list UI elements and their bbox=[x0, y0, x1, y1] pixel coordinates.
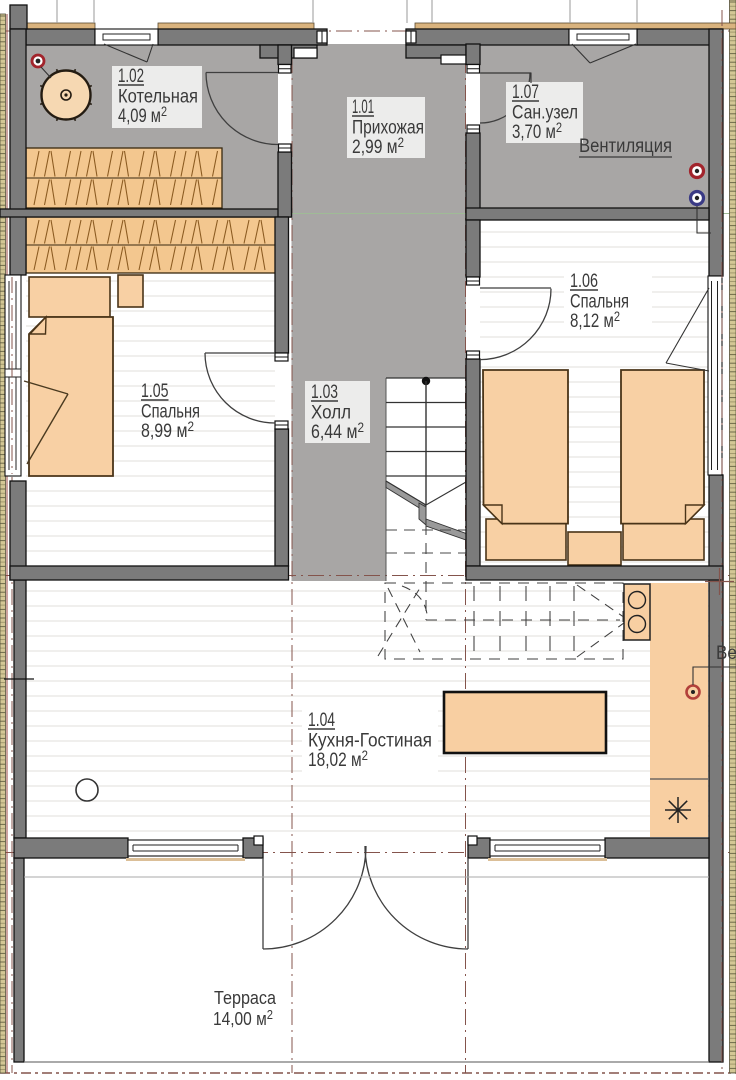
svg-text:Терраса: Терраса bbox=[214, 988, 277, 1008]
svg-text:Котельная: Котельная bbox=[118, 87, 198, 108]
svg-text:Прихожая: Прихожая bbox=[352, 118, 424, 139]
svg-text:1.05: 1.05 bbox=[141, 381, 169, 402]
svg-text:Кухня-Гостиная: Кухня-Гостиная bbox=[308, 731, 432, 752]
svg-text:Вентиляция: Вентиляция bbox=[716, 643, 736, 664]
svg-text:1.03: 1.03 bbox=[311, 382, 338, 403]
svg-text:1.01: 1.01 bbox=[352, 97, 374, 118]
svg-text:3,70 м2: 3,70 м2 bbox=[512, 119, 562, 143]
svg-text:Холл: Холл bbox=[311, 403, 351, 424]
svg-text:1.02: 1.02 bbox=[118, 66, 144, 87]
svg-text:8,99 м2: 8,99 м2 bbox=[141, 418, 194, 442]
svg-text:1.04: 1.04 bbox=[308, 710, 335, 731]
svg-text:2,99 м2: 2,99 м2 bbox=[352, 134, 404, 158]
svg-text:Сан.узел: Сан.узел bbox=[512, 103, 578, 124]
svg-text:6,44 м2: 6,44 м2 bbox=[311, 419, 364, 443]
svg-text:14,00 м2: 14,00 м2 bbox=[213, 1007, 273, 1029]
svg-text:Вентиляция: Вентиляция bbox=[579, 136, 672, 157]
svg-text:Спальня: Спальня bbox=[570, 292, 629, 313]
svg-text:1.07: 1.07 bbox=[512, 82, 539, 103]
svg-text:18,02 м2: 18,02 м2 bbox=[308, 747, 368, 771]
svg-text:8,12 м2: 8,12 м2 bbox=[570, 308, 620, 332]
svg-text:1.06: 1.06 bbox=[570, 271, 598, 292]
svg-text:4,09 м2: 4,09 м2 bbox=[118, 103, 167, 127]
